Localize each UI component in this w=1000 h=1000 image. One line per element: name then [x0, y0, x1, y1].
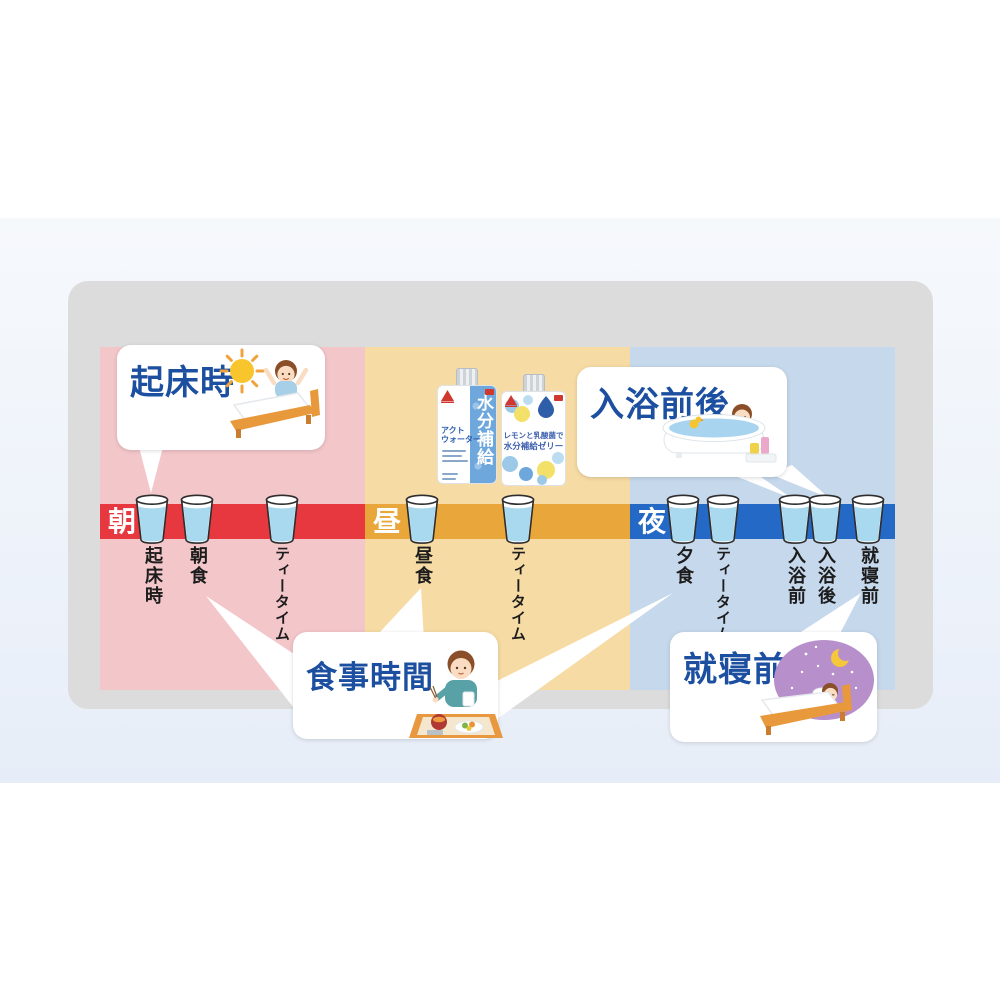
act-water-name-line1: アクト: [441, 426, 481, 435]
night-bar-label: 夜: [638, 504, 666, 539]
fine-print-line: [442, 460, 468, 462]
infographic-page: 朝 昼 夜 起床時 朝食 ティータイム 昼食: [0, 0, 1000, 1000]
water-glass-icon: [850, 492, 886, 546]
water-glass-icon: [264, 492, 300, 546]
water-glass-icon: [665, 492, 701, 546]
lemon-jelly-pouch: レモンと乳酸菌で 水分補給ゼリー: [501, 374, 566, 486]
lemon-jelly-line2: 水分補給ゼリー: [502, 440, 565, 452]
bath-water: [669, 419, 759, 438]
fine-print-line: [442, 450, 466, 452]
timeline-label-before-bath: 入浴前: [784, 546, 806, 606]
morinaga-logo-icon: [441, 390, 454, 403]
sleep-illustration: [746, 636, 874, 740]
water-glass-icon: [807, 492, 843, 546]
water-glass-icon: [705, 492, 741, 546]
pouch-tag-icon: [554, 395, 563, 401]
fine-print-line: [442, 455, 462, 457]
timeline-label-teatime-noon: ティータイム: [507, 546, 529, 642]
water-glass-icon: [500, 492, 536, 546]
water-glass-icon: [179, 492, 215, 546]
meal-illustration: [403, 646, 515, 742]
water-glass-icon: [134, 492, 170, 546]
sleep-bubble: 就寝前: [670, 632, 877, 742]
wake-bubble: 起床時: [117, 345, 325, 450]
timeline-label-lunch: 昼食: [411, 546, 433, 586]
chopstick-rest: [427, 730, 443, 735]
wake-illustration: [212, 347, 332, 447]
pouch-tag-icon: [485, 389, 494, 395]
bath-bubble: 入浴前後: [577, 367, 787, 477]
fine-print-line: [442, 478, 456, 480]
eating-boy: [430, 651, 477, 708]
timeline-label-teatime-morning: ティータイム: [271, 546, 293, 642]
act-water-pouch: 水分補給 アクト ウォーター: [437, 368, 497, 484]
timeline-label-breakfast: 朝食: [186, 546, 208, 586]
meal-bubble: 食事時間: [293, 632, 498, 739]
bath-illustration: [662, 391, 780, 475]
sun-icon: [230, 359, 254, 383]
timeline-label-after-bath: 入浴後: [814, 546, 836, 606]
morning-bar-label: 朝: [108, 504, 136, 539]
morinaga-logo-icon: [505, 395, 517, 407]
act-water-pouch-body: 水分補給 アクト ウォーター: [437, 385, 497, 484]
timeline-label-wake: 起床時: [141, 546, 163, 606]
lemon-jelly-pouch-body: レモンと乳酸菌で 水分補給ゼリー: [501, 391, 566, 486]
timeline-label-dinner: 夕食: [672, 546, 694, 586]
noon-bar-label: 昼: [373, 504, 401, 539]
water-glass-icon: [404, 492, 440, 546]
timeline-label-teatime-night: ティータイム: [712, 546, 734, 642]
fine-print-line: [442, 473, 458, 475]
waking-boy: [266, 360, 306, 398]
act-water-name-line2: ウォーター: [441, 435, 481, 444]
timeline-label-before-sleep: 就寝前: [857, 546, 879, 606]
